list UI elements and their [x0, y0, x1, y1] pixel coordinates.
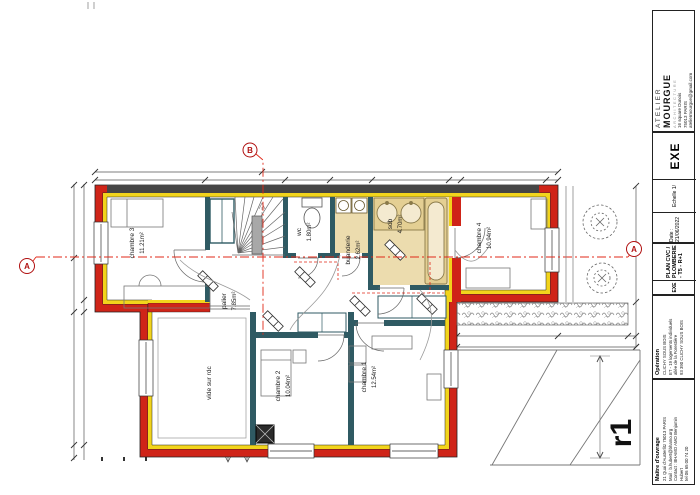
title-block-studio-cell: ATELIER MOURGUE ARCHITECTURE 16 square D…	[652, 10, 695, 132]
studio-name-line2: MOURGUE	[662, 14, 672, 128]
owner-header: Maître d'ouvrage	[655, 383, 661, 481]
room-wc-label: wc	[296, 227, 303, 237]
room-chambre2-label: chambre 2	[275, 370, 282, 401]
room-wc-area: 1.80m²	[307, 223, 313, 242]
drawing-date: Date : 21/06/2022	[653, 212, 696, 242]
section-marker-b: B	[247, 146, 253, 155]
room-palier-label: palier	[221, 292, 228, 309]
dimension-text-marks	[101, 457, 147, 461]
drawing-title: PLAN CVC / PLOMBERIE - T5 - R+1	[653, 244, 696, 280]
title-block-phase-cell: Date : 21/06/2022 Echelle 1/ EXE	[652, 132, 695, 243]
studio-email: ateliermourgue@gmail.com	[688, 14, 694, 128]
title-block-drawing-cell: EXE PLAN CVC / PLOMBERIE - T5 - R+1	[652, 243, 695, 295]
owner-line5: tel 06 65 00 74 20	[684, 383, 690, 481]
phase-label: EXE	[653, 133, 696, 179]
title-block-operation-cell: Opération CLICHY SOUS BOIS ET - 19 logem…	[652, 295, 695, 379]
room-chambre4-label: chambre 4	[476, 222, 483, 253]
drawing-phase-code: EXE	[653, 280, 696, 294]
room-chambre3-area: 11.21m²	[140, 232, 146, 254]
room-chambre4-area: 10.94m²	[487, 227, 493, 249]
title-block-owner-cell: Maître d'ouvrage 21 Quai d'Austerlitz 75…	[652, 379, 695, 485]
room-buanderie-label: buanderie	[345, 235, 352, 264]
section-marker-a-right: A	[631, 245, 637, 254]
room-chambre1-label: chambre 1	[361, 361, 368, 392]
terrace-planting-strip	[457, 303, 628, 325]
room-palier-area: 7.85m²	[232, 292, 238, 311]
drawing-sheet: A A B chambre 3 11.21m² wc 1.80m² buande…	[0, 0, 700, 495]
studio-name-line1: ATELIER	[655, 14, 662, 128]
tree-icons	[583, 205, 617, 293]
room-buanderie-area: 2.62m²	[356, 241, 362, 260]
drawing-scale: Echelle 1/	[653, 179, 696, 212]
room-chambre1-area: 12.54m²	[372, 366, 378, 388]
section-marker-a-left: A	[24, 262, 30, 271]
room-sdb-area: 4.70m²	[398, 215, 404, 234]
bathtub-icon	[425, 198, 447, 284]
floor-plan-canvas: A A B chambre 3 11.21m² wc 1.80m² buande…	[0, 0, 700, 495]
operation-header: Opération	[655, 299, 661, 375]
room-chambre3-label: chambre 3	[129, 227, 136, 258]
room-vide-label: vide sur rdc	[206, 365, 213, 399]
room-sdb-label: sdb	[387, 218, 394, 229]
room-chambre2-area: 10.04m²	[286, 375, 292, 397]
revision-mark: r1	[605, 419, 638, 447]
boundary-fence	[566, 186, 573, 302]
flue-shaft	[256, 425, 274, 443]
operation-line4: 93 390 CLICHY SOUS BOIS	[679, 299, 685, 375]
